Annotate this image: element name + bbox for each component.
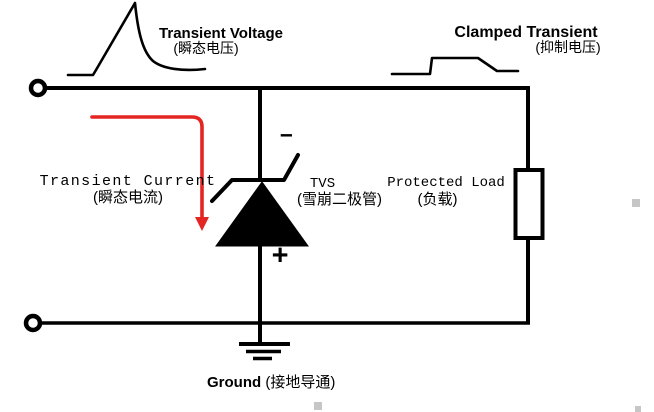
schematic-canvas: Transient Voltage (瞬态电压) Clamped Transie… <box>0 0 654 412</box>
ground-label: Ground (接地导通) <box>207 375 335 391</box>
ground-label-en: Ground <box>207 374 261 391</box>
transient-voltage-label-zh: (瞬态电压) <box>150 41 262 56</box>
tvs-label-zh: (雪崩二极管) <box>288 192 391 208</box>
clamped-waveform-icon <box>392 58 518 74</box>
tvs-label-en: TVS <box>300 177 345 192</box>
minus-polarity-mark: − <box>280 124 293 146</box>
artifact-square-corner <box>635 406 641 412</box>
transient-current-label-zh: (瞬态电流) <box>36 190 220 206</box>
ground-label-zh: (接地导通) <box>265 374 335 391</box>
artifact-square-right <box>632 199 640 207</box>
clamped-transient-label-zh: (抑制电压) <box>493 40 643 55</box>
protected-load-label-en: Protected Load <box>386 176 506 191</box>
transient-current-label-en: Transient Current <box>36 174 220 190</box>
current-arrowhead-icon <box>195 217 209 231</box>
load-resistor-icon <box>516 170 543 238</box>
plus-polarity-mark: + <box>272 241 288 269</box>
protected-load-label-zh: (负载) <box>405 192 470 208</box>
terminal-bottom-icon <box>26 316 40 330</box>
artifact-square-bottom <box>314 402 322 410</box>
terminal-top-icon <box>31 81 45 95</box>
